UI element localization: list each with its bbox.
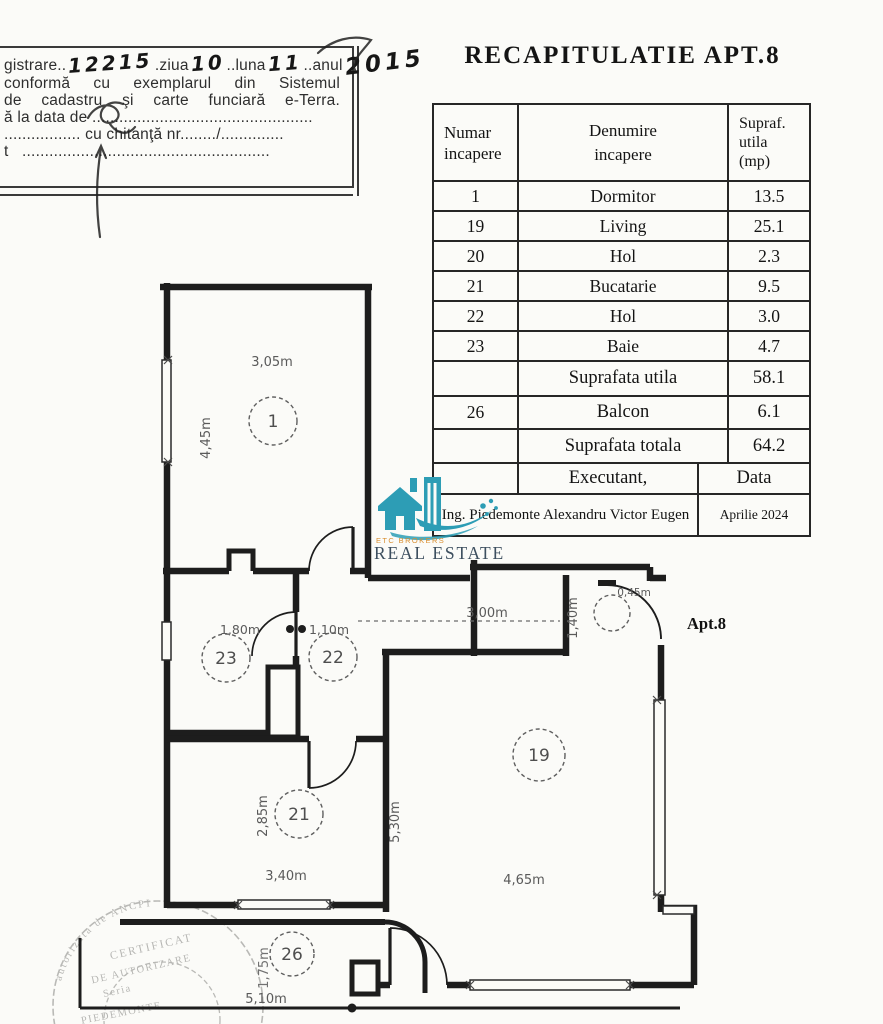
table-row-balcon: 26 Balcon 6.1 bbox=[434, 397, 809, 430]
hdr-line: Denumire bbox=[589, 119, 657, 143]
vertical-stroke bbox=[97, 148, 101, 237]
dim-dot bbox=[348, 1004, 357, 1013]
dim-balcony-width: 5,10m bbox=[245, 992, 287, 1007]
dim-hall: 1,10m bbox=[309, 622, 349, 637]
door-arc-room1 bbox=[309, 527, 353, 571]
col-header-denumire: Denumire incapere bbox=[519, 105, 729, 180]
year-flourish bbox=[318, 38, 371, 70]
cell-date-value: Aprilie 2024 bbox=[699, 495, 809, 535]
room-label-living: 19 bbox=[528, 746, 550, 766]
cell-suprafata-totala-value: 64.2 bbox=[729, 430, 809, 462]
wall-balcony-pillar bbox=[352, 962, 378, 994]
hdr-line: incapere bbox=[444, 143, 502, 164]
cell-room-name: Living bbox=[519, 212, 729, 240]
cell-room-area: 2.3 bbox=[729, 242, 809, 270]
room-label-balcon: 26 bbox=[281, 945, 303, 965]
cell-room-name: Hol bbox=[519, 302, 729, 330]
cell-empty bbox=[434, 362, 519, 395]
cell-room-number: 20 bbox=[434, 242, 519, 270]
cell-empty bbox=[434, 430, 519, 462]
cell-suprafata-utila-label: Suprafata utila bbox=[519, 362, 729, 395]
door-arc-kitchen bbox=[309, 741, 356, 788]
room-label-dormitor: 1 bbox=[268, 412, 279, 432]
window-bath bbox=[162, 622, 171, 660]
dim-dot bbox=[298, 625, 306, 633]
logo-buildings-icon bbox=[378, 477, 498, 540]
real-estate-logo: ETC BROKERS REAL ESTATE bbox=[370, 464, 504, 562]
wall-shaft bbox=[268, 667, 298, 737]
dim-corridor: 3,00m bbox=[466, 606, 508, 621]
table-row: 19 Living 25.1 bbox=[434, 212, 809, 242]
cell-room-name: Baie bbox=[519, 332, 729, 360]
table-row: 23 Baie 4.7 bbox=[434, 332, 809, 362]
dim-kitchen-height: 2,85m bbox=[256, 795, 271, 837]
window-step bbox=[663, 906, 694, 914]
dim-kitchen-width: 3,40m bbox=[265, 869, 307, 884]
cell-room-number: 19 bbox=[434, 212, 519, 240]
cell-room-name: Dormitor bbox=[519, 182, 729, 210]
dim-living-height: 5,30m bbox=[388, 801, 403, 843]
dim-entry-height: 1,40m bbox=[566, 597, 581, 639]
cell-room-number: 22 bbox=[434, 302, 519, 330]
stamp-text-seria: Seria bbox=[102, 983, 133, 1000]
cell-room-area: 3.0 bbox=[729, 302, 809, 330]
cell-room-area: 9.5 bbox=[729, 272, 809, 300]
dim-dot bbox=[286, 625, 294, 633]
table-row: 22 Hol 3.0 bbox=[434, 302, 809, 332]
stamp-text-piedemonte: PIEDEMONTE bbox=[80, 1000, 163, 1024]
table-row-suprafata-totala: Suprafata totala 64.2 bbox=[434, 430, 809, 464]
col-header-suprafata: Supraf. utila (mp) bbox=[729, 105, 809, 180]
cell-room-area: 6.1 bbox=[729, 397, 809, 428]
dim-room1-height: 4,45m bbox=[199, 417, 214, 459]
table-row: 20 Hol 2.3 bbox=[434, 242, 809, 272]
table-row-suprafata-utila: Suprafata utila 58.1 bbox=[434, 362, 809, 397]
dim-living-width: 4,65m bbox=[503, 873, 545, 888]
scanned-document-page: gistrare..12215.ziua10..luna11..anul2015… bbox=[0, 0, 883, 1024]
doors bbox=[252, 527, 661, 985]
entry-door-circle bbox=[594, 595, 630, 631]
col-header-numar: Numar incapere bbox=[434, 105, 519, 180]
cell-suprafata-utila-value: 58.1 bbox=[729, 362, 809, 395]
hdr-line: incapere bbox=[594, 143, 652, 167]
hdr-line: Supraf. bbox=[739, 114, 786, 133]
wall-bottom-right-step bbox=[661, 908, 694, 985]
signature-scribble bbox=[88, 102, 135, 132]
table-row: 1 Dormitor 13.5 bbox=[434, 182, 809, 212]
dim-bath: 1,80m bbox=[220, 622, 260, 637]
round-certification-stamp: autorizata de ANCPI CERTIFICAT DE AUTORI… bbox=[53, 898, 263, 1024]
cell-room-name: Hol bbox=[519, 242, 729, 270]
cell-room-number: 26 bbox=[434, 397, 519, 428]
hdr-line: utila bbox=[739, 133, 767, 152]
cell-room-area: 4.7 bbox=[729, 332, 809, 360]
room-label-hol22: 22 bbox=[322, 648, 344, 668]
table-header-row: Numar incapere Denumire incapere Supraf.… bbox=[434, 105, 809, 182]
room-label-bucatarie: 21 bbox=[288, 805, 310, 825]
window-living-south bbox=[470, 980, 630, 990]
window-kitchen bbox=[238, 900, 330, 909]
cell-room-area: 25.1 bbox=[729, 212, 809, 240]
hdr-line: (mp) bbox=[739, 152, 770, 171]
cell-room-area: 13.5 bbox=[729, 182, 809, 210]
apartment-label: Apt.8 bbox=[687, 614, 726, 633]
window-room1 bbox=[162, 360, 171, 462]
page-title: RECAPITULATIE APT.8 bbox=[432, 42, 813, 70]
cell-suprafata-totala-label: Suprafata totala bbox=[519, 430, 729, 462]
cell-room-number: 21 bbox=[434, 272, 519, 300]
cell-room-name: Bucatarie bbox=[519, 272, 729, 300]
cell-data-label: Data bbox=[699, 464, 809, 493]
handwritten-strokes bbox=[88, 38, 371, 237]
stamp-text-autorizare: DE AUTORIZARE bbox=[90, 953, 192, 987]
cell-room-number: 1 bbox=[434, 182, 519, 210]
dim-room1-width: 3,05m bbox=[251, 355, 293, 370]
table-row: 21 Bucatarie 9.5 bbox=[434, 272, 809, 302]
wall-pillar-bump bbox=[229, 551, 253, 571]
room-label-baie: 23 bbox=[215, 649, 237, 669]
cell-room-name: Balcon bbox=[519, 397, 729, 428]
logo-realestate-text: REAL ESTATE bbox=[374, 543, 504, 562]
window-living-east bbox=[654, 700, 665, 895]
cell-room-number: 23 bbox=[434, 332, 519, 360]
cell-executant-label: Executant, bbox=[519, 464, 699, 493]
dim-balcony-height: 1,75m bbox=[257, 947, 272, 989]
dim-entry-width: 0,45m bbox=[617, 587, 651, 599]
hdr-line: Numar bbox=[444, 122, 491, 143]
